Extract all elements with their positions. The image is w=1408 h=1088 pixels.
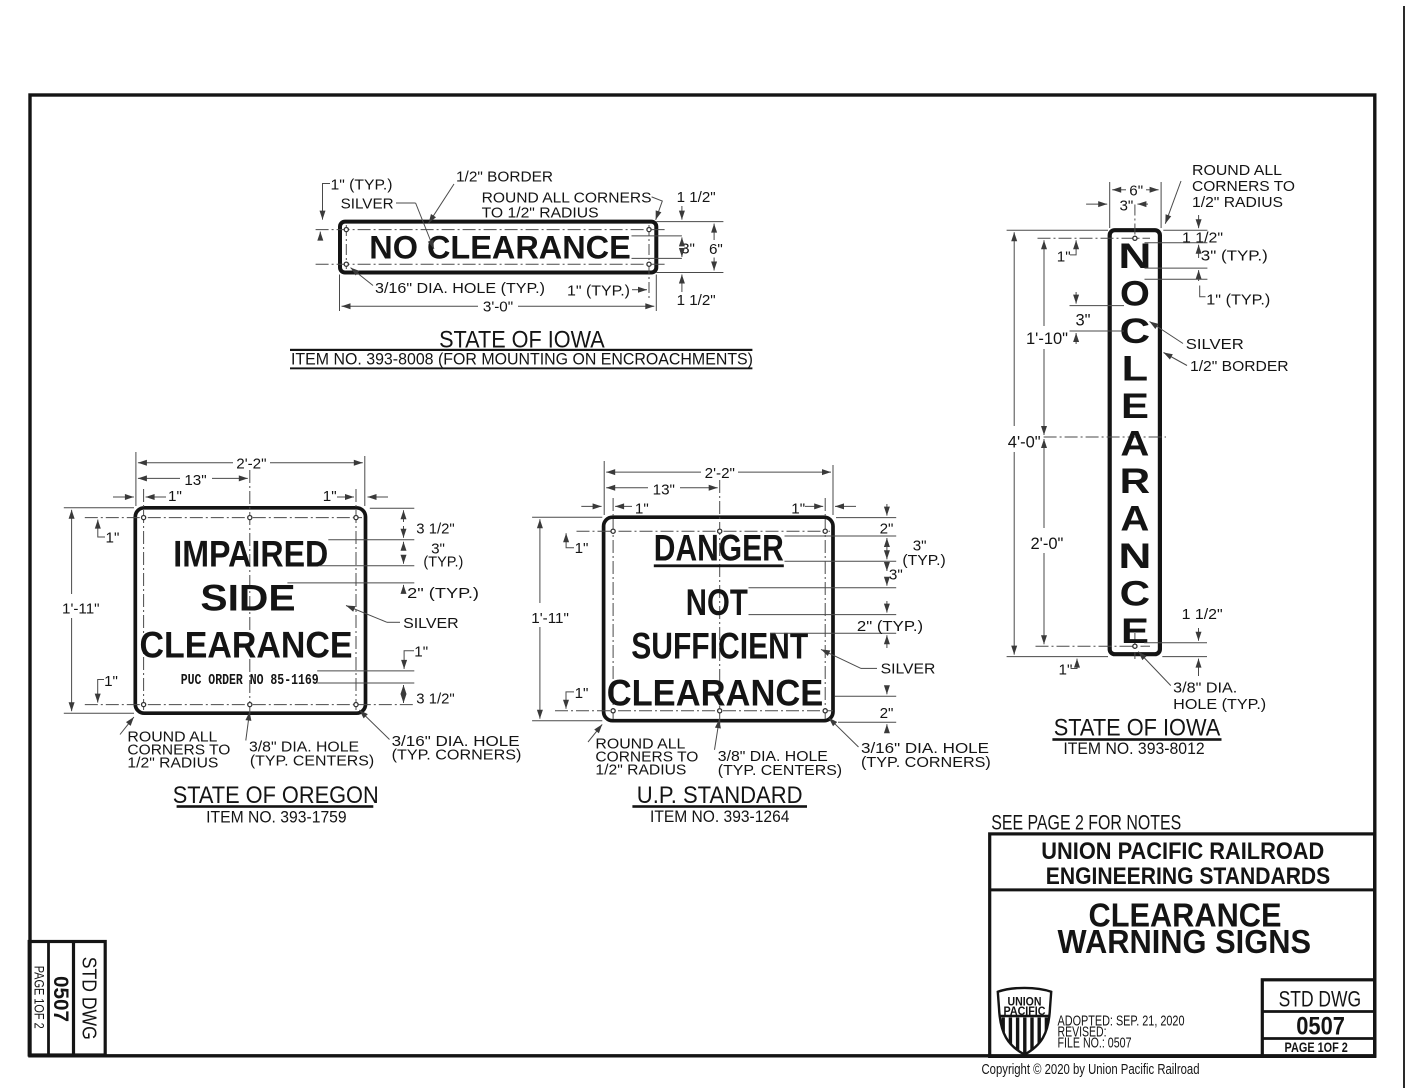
svg-text:3": 3" [1075,312,1090,330]
svg-text:3": 3" [889,567,903,584]
svg-text:R: R [1120,462,1151,501]
svg-text:3": 3" [681,241,695,258]
svg-text:SIDE: SIDE [200,577,295,619]
svg-text:CLEARANCE: CLEARANCE [607,672,824,714]
svg-text:WARNING SIGNS: WARNING SIGNS [1058,923,1312,960]
svg-text:1 1/2": 1 1/2" [1182,229,1223,246]
svg-text:3/16" DIA. HOLE (TYP.): 3/16" DIA. HOLE (TYP.) [375,280,545,297]
svg-text:1 1/2": 1 1/2" [1182,606,1223,623]
svg-text:PUC ORDER NO 85-1169: PUC ORDER NO 85-1169 [181,672,319,689]
svg-text:2" (TYP.): 2" (TYP.) [407,585,479,602]
svg-text:N: N [1118,536,1151,576]
svg-text:SILVER: SILVER [403,615,459,632]
svg-text:STD DWG: STD DWG [77,957,99,1040]
svg-text:(TYP. CENTERS): (TYP. CENTERS) [250,752,374,769]
svg-text:1": 1" [791,501,805,518]
svg-text:C: C [1120,574,1151,613]
svg-text:ROUND ALL: ROUND ALL [1192,162,1282,179]
svg-text:0507: 0507 [49,976,72,1022]
svg-text:1": 1" [1059,662,1073,679]
svg-text:3 1/2": 3 1/2" [416,521,454,538]
svg-text:13": 13" [184,472,206,489]
svg-text:O: O [1120,274,1150,313]
svg-text:SILVER: SILVER [881,661,936,678]
svg-text:2'-2": 2'-2" [236,455,266,472]
svg-text:1": 1" [104,673,118,690]
svg-text:UNION PACIFIC RAILROAD: UNION PACIFIC RAILROAD [1041,838,1324,865]
svg-text:1'-11": 1'-11" [62,600,100,617]
svg-text:STD DWG: STD DWG [1279,986,1362,1011]
svg-text:PACIFIC: PACIFIC [1004,1006,1046,1018]
svg-text:HOLE (TYP.): HOLE (TYP.) [1173,696,1266,713]
svg-text:CLEARANCE: CLEARANCE [140,623,353,665]
svg-text:IMPAIRED: IMPAIRED [173,532,328,574]
svg-text:ITEM NO. 393-1759: ITEM NO. 393-1759 [206,807,347,826]
svg-text:1 1/2": 1 1/2" [677,189,716,206]
svg-text:1" (TYP.): 1" (TYP.) [567,283,630,300]
svg-text:STATE OF IOWA: STATE OF IOWA [1054,715,1221,742]
svg-text:(TYP.): (TYP.) [902,552,945,569]
svg-text:ITEM NO. 393-8008 (FOR MOUNTIN: ITEM NO. 393-8008 (FOR MOUNTING ON ENCRO… [291,349,753,368]
svg-text:TO 1/2" RADIUS: TO 1/2" RADIUS [482,205,599,222]
svg-text:1'-11": 1'-11" [531,610,569,627]
svg-text:(TYP.): (TYP.) [423,554,463,571]
svg-text:2" (TYP.): 2" (TYP.) [857,618,923,635]
svg-text:N: N [1118,236,1151,276]
svg-text:1/2" BORDER: 1/2" BORDER [1190,358,1289,375]
svg-text:E: E [1121,612,1149,651]
svg-text:1": 1" [106,529,120,546]
svg-text:SEE PAGE 2 FOR NOTES: SEE PAGE 2 FOR NOTES [991,811,1181,835]
svg-text:U.P. STANDARD: U.P. STANDARD [637,782,803,809]
svg-text:3" (TYP.): 3" (TYP.) [1201,247,1268,264]
svg-text:1 1/2": 1 1/2" [677,292,716,309]
svg-text:ITEM NO. 393-8012: ITEM NO. 393-8012 [1063,739,1204,758]
svg-text:STATE OF OREGON: STATE OF OREGON [173,782,379,809]
svg-text:3 1/2": 3 1/2" [416,691,454,708]
svg-text:Copyright © 2020 by Union Paci: Copyright © 2020 by Union Pacific Railro… [982,1062,1200,1078]
svg-text:1" (TYP.): 1" (TYP.) [1206,292,1270,309]
svg-text:6": 6" [709,241,723,258]
svg-text:1": 1" [323,488,337,505]
svg-text:4'-0": 4'-0" [1008,434,1041,452]
svg-text:PAGE 1OF 2: PAGE 1OF 2 [31,966,46,1029]
svg-text:1": 1" [635,501,649,518]
svg-text:1": 1" [575,540,589,557]
svg-text:(TYP. CENTERS): (TYP. CENTERS) [718,762,842,779]
svg-text:A: A [1120,499,1149,538]
svg-text:SILVER: SILVER [341,195,394,212]
svg-text:A: A [1120,424,1149,463]
svg-text:1": 1" [168,488,182,505]
svg-text:1/2" RADIUS: 1/2" RADIUS [595,762,686,779]
svg-text:2": 2" [880,705,894,722]
svg-text:3'-0": 3'-0" [483,298,513,315]
svg-text:1" (TYP.): 1" (TYP.) [331,177,393,194]
svg-text:ENGINEERING STANDARDS: ENGINEERING STANDARDS [1046,863,1331,890]
svg-text:(TYP. CORNERS): (TYP. CORNERS) [861,754,991,771]
svg-text:13": 13" [653,481,675,498]
svg-text:DANGER: DANGER [654,527,784,569]
svg-text:(TYP. CORNERS): (TYP. CORNERS) [392,747,522,764]
svg-text:1": 1" [575,685,589,702]
svg-text:PAGE 1OF 2: PAGE 1OF 2 [1285,1039,1348,1055]
svg-text:SUFFICIENT: SUFFICIENT [631,625,808,667]
svg-text:L: L [1122,349,1148,388]
svg-text:NO CLEARANCE: NO CLEARANCE [369,229,631,265]
svg-text:1/2" RADIUS: 1/2" RADIUS [127,755,218,772]
svg-text:C: C [1120,312,1151,351]
svg-text:ITEM NO. 393-1264: ITEM NO. 393-1264 [650,807,789,826]
svg-text:1": 1" [414,644,428,661]
svg-text:E: E [1121,387,1149,426]
svg-text:3": 3" [1119,198,1133,215]
svg-text:2'-2": 2'-2" [705,465,735,482]
svg-text:1/2" BORDER: 1/2" BORDER [456,169,553,186]
svg-text:1'-10": 1'-10" [1026,330,1068,348]
svg-text:NOT: NOT [686,581,748,623]
svg-text:2'-0": 2'-0" [1031,535,1064,553]
svg-text:0507: 0507 [1296,1013,1345,1040]
svg-text:FILE NO.: 0507: FILE NO.: 0507 [1058,1035,1132,1052]
svg-text:3/8" DIA.: 3/8" DIA. [1173,680,1237,697]
svg-text:CORNERS TO: CORNERS TO [1192,178,1295,195]
svg-text:1/2" RADIUS: 1/2" RADIUS [1192,194,1283,211]
svg-text:SILVER: SILVER [1186,336,1244,353]
svg-text:1": 1" [1057,249,1071,266]
svg-text:2": 2" [880,521,894,538]
